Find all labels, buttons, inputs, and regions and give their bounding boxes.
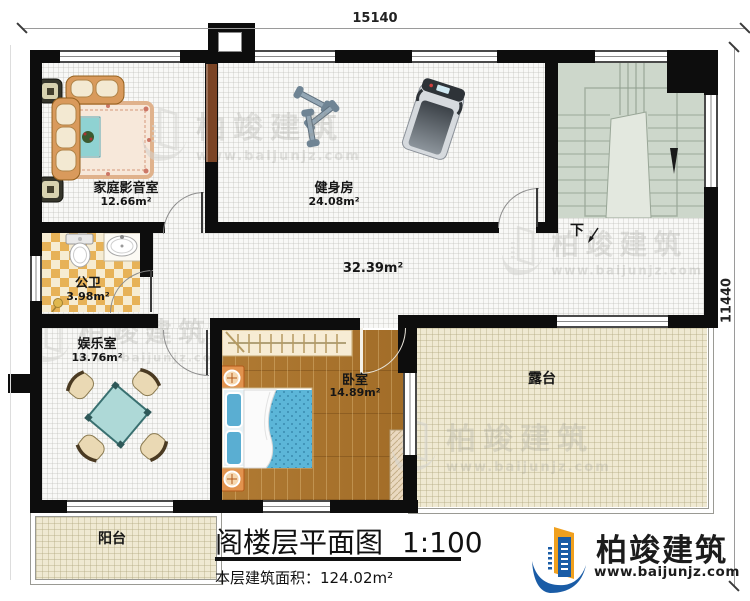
room-label-bathroom: 公卫 <box>58 277 118 291</box>
window-bedroom-right <box>403 373 417 455</box>
room-label-gym: 健身房 <box>274 182 394 196</box>
company-website: www.baijunjz.com <box>594 564 740 580</box>
nightstand <box>220 366 244 390</box>
pocket-door-theater <box>206 64 217 162</box>
game-table-set <box>58 360 178 475</box>
window-gym-top-2 <box>412 50 497 63</box>
sliding-door-balcony <box>67 500 173 513</box>
nightstand <box>220 467 244 491</box>
room-label-terrace: 露台 <box>502 372 582 387</box>
stair-divider <box>606 112 651 218</box>
door-leaf-entertainment <box>206 330 208 375</box>
balcony-floor <box>35 516 217 580</box>
plan-title: 阁楼层平面图 <box>215 526 383 559</box>
double-bed <box>222 388 312 468</box>
floor-area-note: 本层建筑面积：124.02m² <box>215 567 393 588</box>
room-area-entertainment: 13.76m² <box>47 352 147 364</box>
floor-plan-canvas: 柏竣建筑 www.baijunjz.com 柏竣建筑 www.baijunjz.… <box>0 0 750 601</box>
terrace-floor <box>408 328 707 507</box>
floor-area-label: 本层建筑面积： <box>215 569 320 587</box>
wall-bedroom-left <box>210 318 222 513</box>
room-label-home-theater: 家庭影音室 <box>66 182 186 196</box>
dimension-top-value: 15140 <box>340 11 410 26</box>
window-bathroom-left <box>30 256 42 301</box>
window-gym-top-1 <box>255 50 335 63</box>
room-area-gym: 24.08m² <box>274 196 394 208</box>
dimension-line-top <box>22 28 745 29</box>
room-area-bedroom: 14.89m² <box>305 387 405 399</box>
wall-terrace-top-left <box>398 315 557 328</box>
gym-equipment <box>280 78 485 170</box>
window-right-wall <box>704 95 718 187</box>
wall-bedroom-top <box>210 318 360 330</box>
room-area-hall: 32.39m² <box>323 262 423 276</box>
window-stair-top <box>595 50 667 63</box>
sheet-edge-line <box>10 45 11 580</box>
wall-stair-left <box>545 50 558 233</box>
chair <box>137 430 169 463</box>
room-area-home-theater: 12.66m² <box>66 196 186 208</box>
plan-title-row: 阁楼层平面图 1:100 <box>215 521 483 561</box>
chimney-flue <box>218 32 242 52</box>
window-bedroom-bottom <box>263 500 330 513</box>
sliding-door-terrace <box>557 315 668 328</box>
sink-icon <box>104 233 141 261</box>
terrace <box>408 328 714 514</box>
terrace-inner-border <box>408 328 709 509</box>
toilet-icon <box>66 234 93 267</box>
room-area-bathroom: 3.98m² <box>58 291 118 303</box>
wardrobe <box>222 330 352 356</box>
treadmill-icon <box>401 78 468 161</box>
wall-terrace-top-right <box>668 315 718 328</box>
dimension-right-value: 11440 <box>720 271 735 331</box>
chair <box>129 367 162 399</box>
door-leaf-bathroom <box>150 270 152 312</box>
floor-area-value: 124.02m² <box>320 569 393 587</box>
chair <box>65 369 97 402</box>
window-theater-top <box>60 50 180 63</box>
door-leaf-gym <box>536 188 538 227</box>
plan-scale: 1:100 <box>402 526 483 559</box>
room-label-entertainment: 娱乐室 <box>47 338 147 352</box>
wall-left-pier <box>8 374 30 393</box>
wall-ent-top <box>30 314 158 328</box>
balcony <box>30 511 222 585</box>
wall-right <box>704 50 718 328</box>
title-underline <box>215 557 461 561</box>
company-logo-icon <box>528 521 590 593</box>
chair <box>75 432 108 464</box>
door-leaf-bedroom <box>360 328 363 373</box>
wall-gym-bottom <box>218 222 499 233</box>
room-label-balcony: 阳台 <box>72 532 152 547</box>
wall-theater-bottom <box>30 222 165 233</box>
dumbbells-icon <box>292 85 340 148</box>
stairs-down-leader-icon <box>586 226 600 244</box>
door-leaf-theater <box>201 192 203 233</box>
